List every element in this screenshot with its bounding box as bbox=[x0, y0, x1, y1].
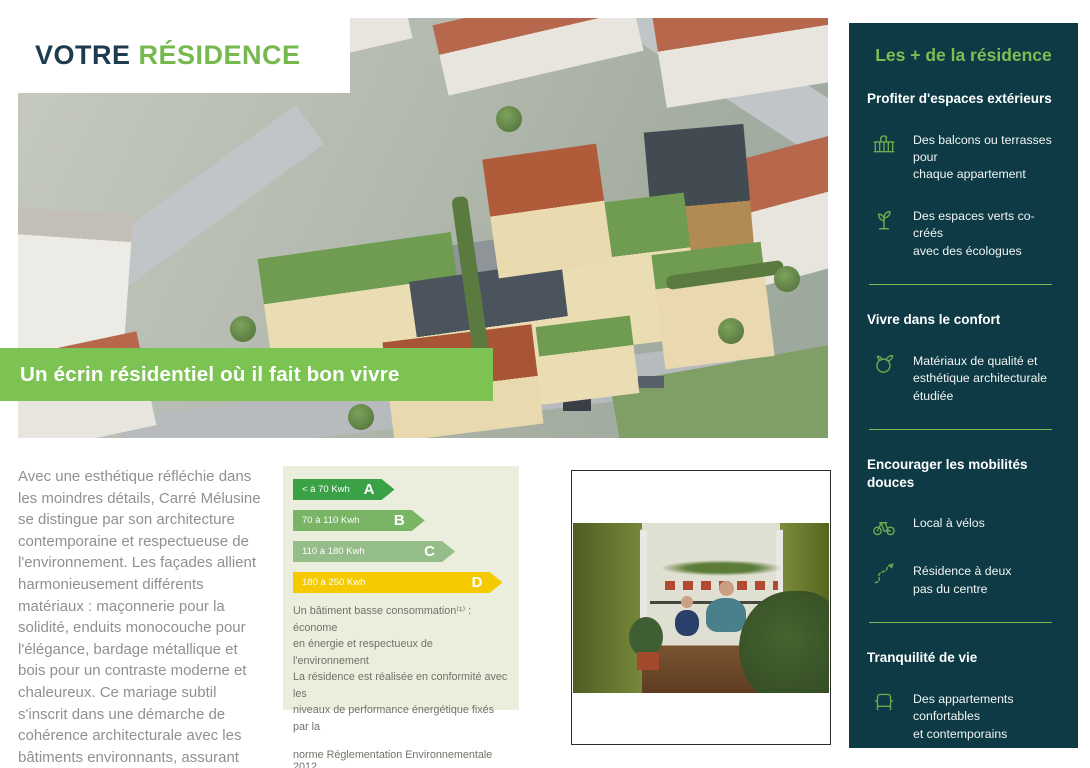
benefit-item: Des appartements confortables et contemp… bbox=[867, 691, 1060, 743]
page-title: VOTRE RÉSIDENCE bbox=[35, 40, 301, 71]
band-letter: B bbox=[394, 512, 425, 529]
banner: Un écrin résidentiel où il fait bon vivr… bbox=[0, 348, 493, 401]
photo-child-figure bbox=[675, 610, 699, 636]
bicycle-icon bbox=[871, 513, 897, 539]
residence-building-terracotta-roof bbox=[482, 144, 613, 279]
photo-pot bbox=[637, 652, 659, 670]
band-range: 70 à 110 Kwh bbox=[293, 515, 394, 526]
sidebar-title: Les + de la résidence bbox=[867, 45, 1060, 66]
sidebar-divider bbox=[869, 429, 1052, 430]
quality-materials-icon bbox=[871, 351, 897, 377]
section-header-mobilites-douces: Encourager les mobilités douces bbox=[867, 456, 1060, 491]
band-range: < à 70 Kwh bbox=[293, 484, 364, 495]
photo-father-figure bbox=[719, 581, 734, 596]
energy-band-A: < à 70 KwhA bbox=[293, 479, 395, 500]
sidebar-divider bbox=[869, 622, 1052, 623]
band-letter: D bbox=[472, 574, 503, 591]
energy-band-C: 110 à 180 KwhC bbox=[293, 541, 455, 562]
benefit-item: Des espaces verts co-créés avec des écol… bbox=[867, 208, 1060, 260]
tree bbox=[774, 266, 800, 292]
benefit-text: Local à vélos bbox=[913, 515, 985, 532]
energy-band-D: 180 à 250 KwhD bbox=[293, 572, 503, 593]
energy-panel: < à 70 KwhA70 à 110 KwhB110 à 180 KwhC18… bbox=[283, 466, 519, 710]
photo-plant bbox=[739, 591, 829, 693]
benefit-text: Des espaces verts co-créés avec des écol… bbox=[913, 208, 1060, 260]
tree bbox=[718, 318, 744, 344]
energy-band-B: 70 à 110 KwhB bbox=[293, 510, 425, 531]
photo-wall bbox=[573, 523, 642, 693]
benefit-text: Matériaux de qualité et esthétique archi… bbox=[913, 353, 1047, 405]
energy-scale: < à 70 KwhA70 à 110 KwhB110 à 180 KwhC18… bbox=[293, 479, 509, 593]
tree bbox=[496, 106, 522, 132]
balcony-photo bbox=[573, 523, 829, 693]
benefit-text: Des appartements confortables et contemp… bbox=[913, 691, 1060, 743]
walking-path-icon bbox=[871, 561, 897, 587]
band-letter: C bbox=[424, 543, 455, 560]
energy-norm: norme Réglementation Environnementale 20… bbox=[293, 749, 509, 768]
tree bbox=[230, 316, 256, 342]
plant-icon bbox=[871, 206, 897, 232]
photo-frame bbox=[571, 470, 831, 745]
page: VOTRE RÉSIDENCE Un écrin résidentiel où … bbox=[0, 0, 1090, 768]
residence-building-green-roof bbox=[651, 242, 774, 370]
section-header-confort: Vivre dans le confort bbox=[867, 311, 1060, 329]
benefit-text: Des balcons ou terrasses pour chaque app… bbox=[913, 132, 1060, 184]
benefit-text: Résidence à deux pas du centre bbox=[913, 563, 1011, 598]
benefit-item: Matériaux de qualité et esthétique archi… bbox=[867, 353, 1060, 405]
car bbox=[638, 376, 664, 388]
sidebar-divider bbox=[869, 284, 1052, 285]
photo-child-figure bbox=[681, 596, 693, 608]
page-title-accent: RÉSIDENCE bbox=[139, 40, 301, 70]
page-title-primary: VOTRE bbox=[35, 40, 131, 70]
sidebar: Les + de la résidence Profiter d'espaces… bbox=[849, 23, 1078, 748]
benefit-item: Des balcons ou terrasses pour chaque app… bbox=[867, 132, 1060, 184]
armchair-icon bbox=[871, 689, 897, 715]
section-header-espaces-exterieurs: Profiter d'espaces extérieurs bbox=[867, 90, 1060, 108]
photo-father-figure bbox=[706, 598, 746, 632]
neighbor-building bbox=[432, 18, 643, 96]
band-range: 110 à 180 Kwh bbox=[293, 546, 424, 557]
photo-plant bbox=[629, 617, 663, 657]
photo-plants bbox=[660, 560, 783, 576]
energy-note: Un bâtiment basse consommation⁽¹⁾ : écon… bbox=[293, 603, 509, 735]
band-letter: A bbox=[364, 481, 395, 498]
benefit-item: Résidence à deux pas du centre bbox=[867, 563, 1060, 598]
benefit-item: Local à vélos bbox=[867, 515, 1060, 539]
balcony-icon bbox=[871, 130, 897, 156]
intro-paragraph: Avec une esthétique réfléchie dans les m… bbox=[18, 466, 286, 768]
band-range: 180 à 250 Kwh bbox=[293, 577, 472, 588]
tree bbox=[348, 404, 374, 430]
residence-annex-green-roof bbox=[536, 316, 640, 405]
section-header-tranquilite: Tranquilité de vie bbox=[867, 649, 1060, 667]
title-block: VOTRE RÉSIDENCE bbox=[0, 0, 350, 93]
